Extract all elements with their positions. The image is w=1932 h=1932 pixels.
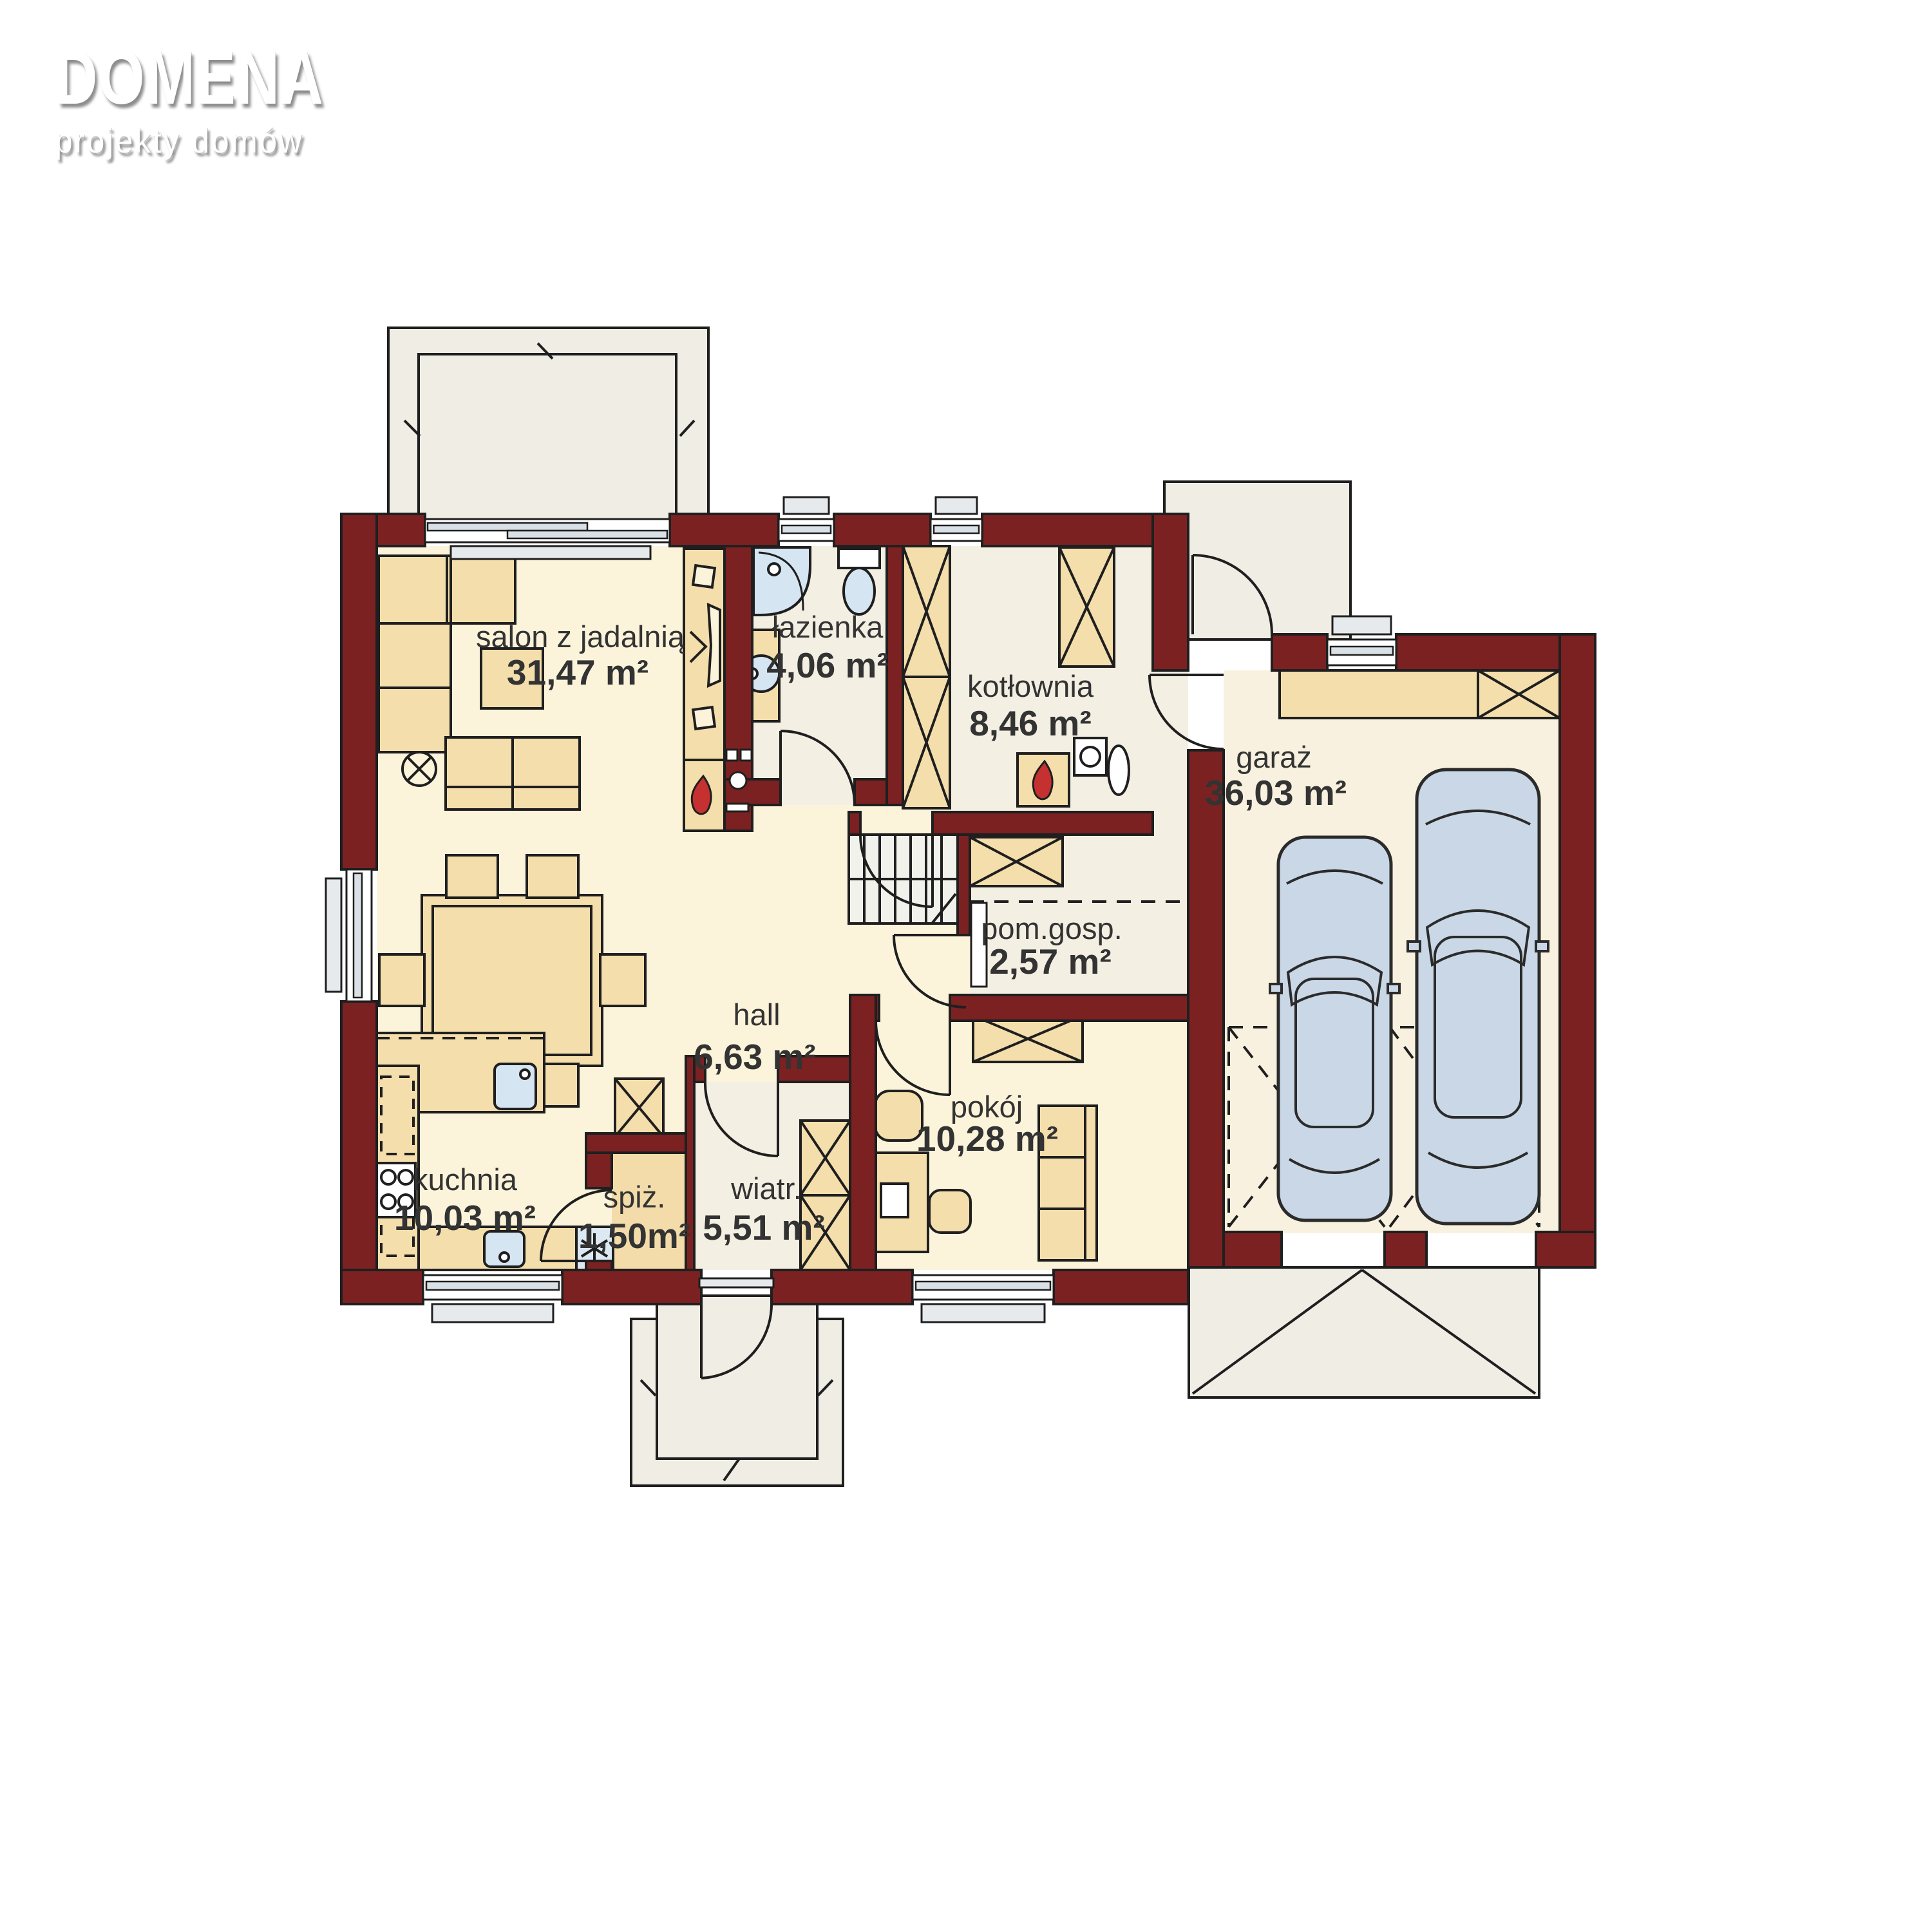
room-area-salon: 31,47 m²: [507, 652, 649, 692]
room-area-hall: 6,63 m²: [694, 1037, 816, 1077]
armchair: [875, 1091, 922, 1141]
salon-side-window: [326, 869, 372, 1001]
room-area-lazienka: 4,06 m²: [766, 645, 889, 685]
garage-cabinet: [1478, 670, 1560, 718]
desk-monitor: [881, 1184, 908, 1217]
room-label-wiatr: wiatr.: [730, 1171, 802, 1206]
car-2: [1408, 770, 1548, 1224]
bathroom-window: [779, 497, 834, 541]
utility-sink: [1108, 746, 1129, 795]
kotlownia-cabinet: [1059, 547, 1114, 667]
room-area-garaz: 36,03 m²: [1205, 773, 1347, 813]
kitchen-sink-top: [495, 1064, 536, 1109]
room-label-hall: hall: [733, 998, 780, 1032]
room-label-spiz: spiż.: [603, 1180, 666, 1214]
pokoj-wardrobe: [973, 1016, 1083, 1062]
loveseat: [446, 737, 580, 810]
stairs: [849, 835, 958, 923]
room-label-kotlownia: kotłownia: [967, 669, 1094, 703]
entrance-threshold: [699, 1278, 773, 1287]
room-label-kuchnia: kuchnia: [413, 1162, 518, 1197]
kotlownia-window: [931, 497, 982, 541]
room-area-wiatr: 5,51 m²: [703, 1207, 825, 1247]
page: DOMENA projekty domów: [0, 0, 1932, 1932]
entrance-porch: [631, 1296, 843, 1486]
room-area-pokoj: 10,28 m²: [916, 1119, 1058, 1159]
floor-lamp: [402, 752, 436, 786]
garage-apron: [1189, 1267, 1539, 1397]
room-label-salon: salon z jadalnią: [476, 620, 685, 654]
salon-terrace-door: [425, 519, 670, 559]
room-label-lazienka: łazienka: [772, 610, 884, 644]
wiatr-wardrobe: [800, 1121, 850, 1270]
garage-window: [1327, 616, 1396, 665]
terrace-top-left: [388, 328, 708, 522]
room-area-spiz: 1,50m²: [578, 1216, 690, 1256]
hall-cabinet: [615, 1079, 663, 1137]
room-label-pomgosp: pom.gosp.: [981, 911, 1122, 945]
car-1: [1270, 837, 1399, 1220]
kotlownia-wardrobe: [903, 546, 950, 808]
floor-plan: salon z jadalnią 31,47 m² łazienka 4,06 …: [0, 0, 1932, 1932]
pokoj-window: [913, 1275, 1054, 1322]
room-label-garaz: garaż: [1236, 740, 1312, 774]
desk-chair: [929, 1190, 971, 1233]
room-area-kotlownia: 8,46 m²: [969, 703, 1092, 743]
garage-counter: [1280, 670, 1478, 718]
room-area-pomgosp: 2,57 m²: [989, 942, 1112, 981]
kitchen-window: [423, 1275, 562, 1322]
room-area-kuchnia: 10,03 m²: [394, 1198, 536, 1238]
pomgosp-cabinet: [970, 837, 1063, 886]
washer: [1074, 738, 1106, 775]
